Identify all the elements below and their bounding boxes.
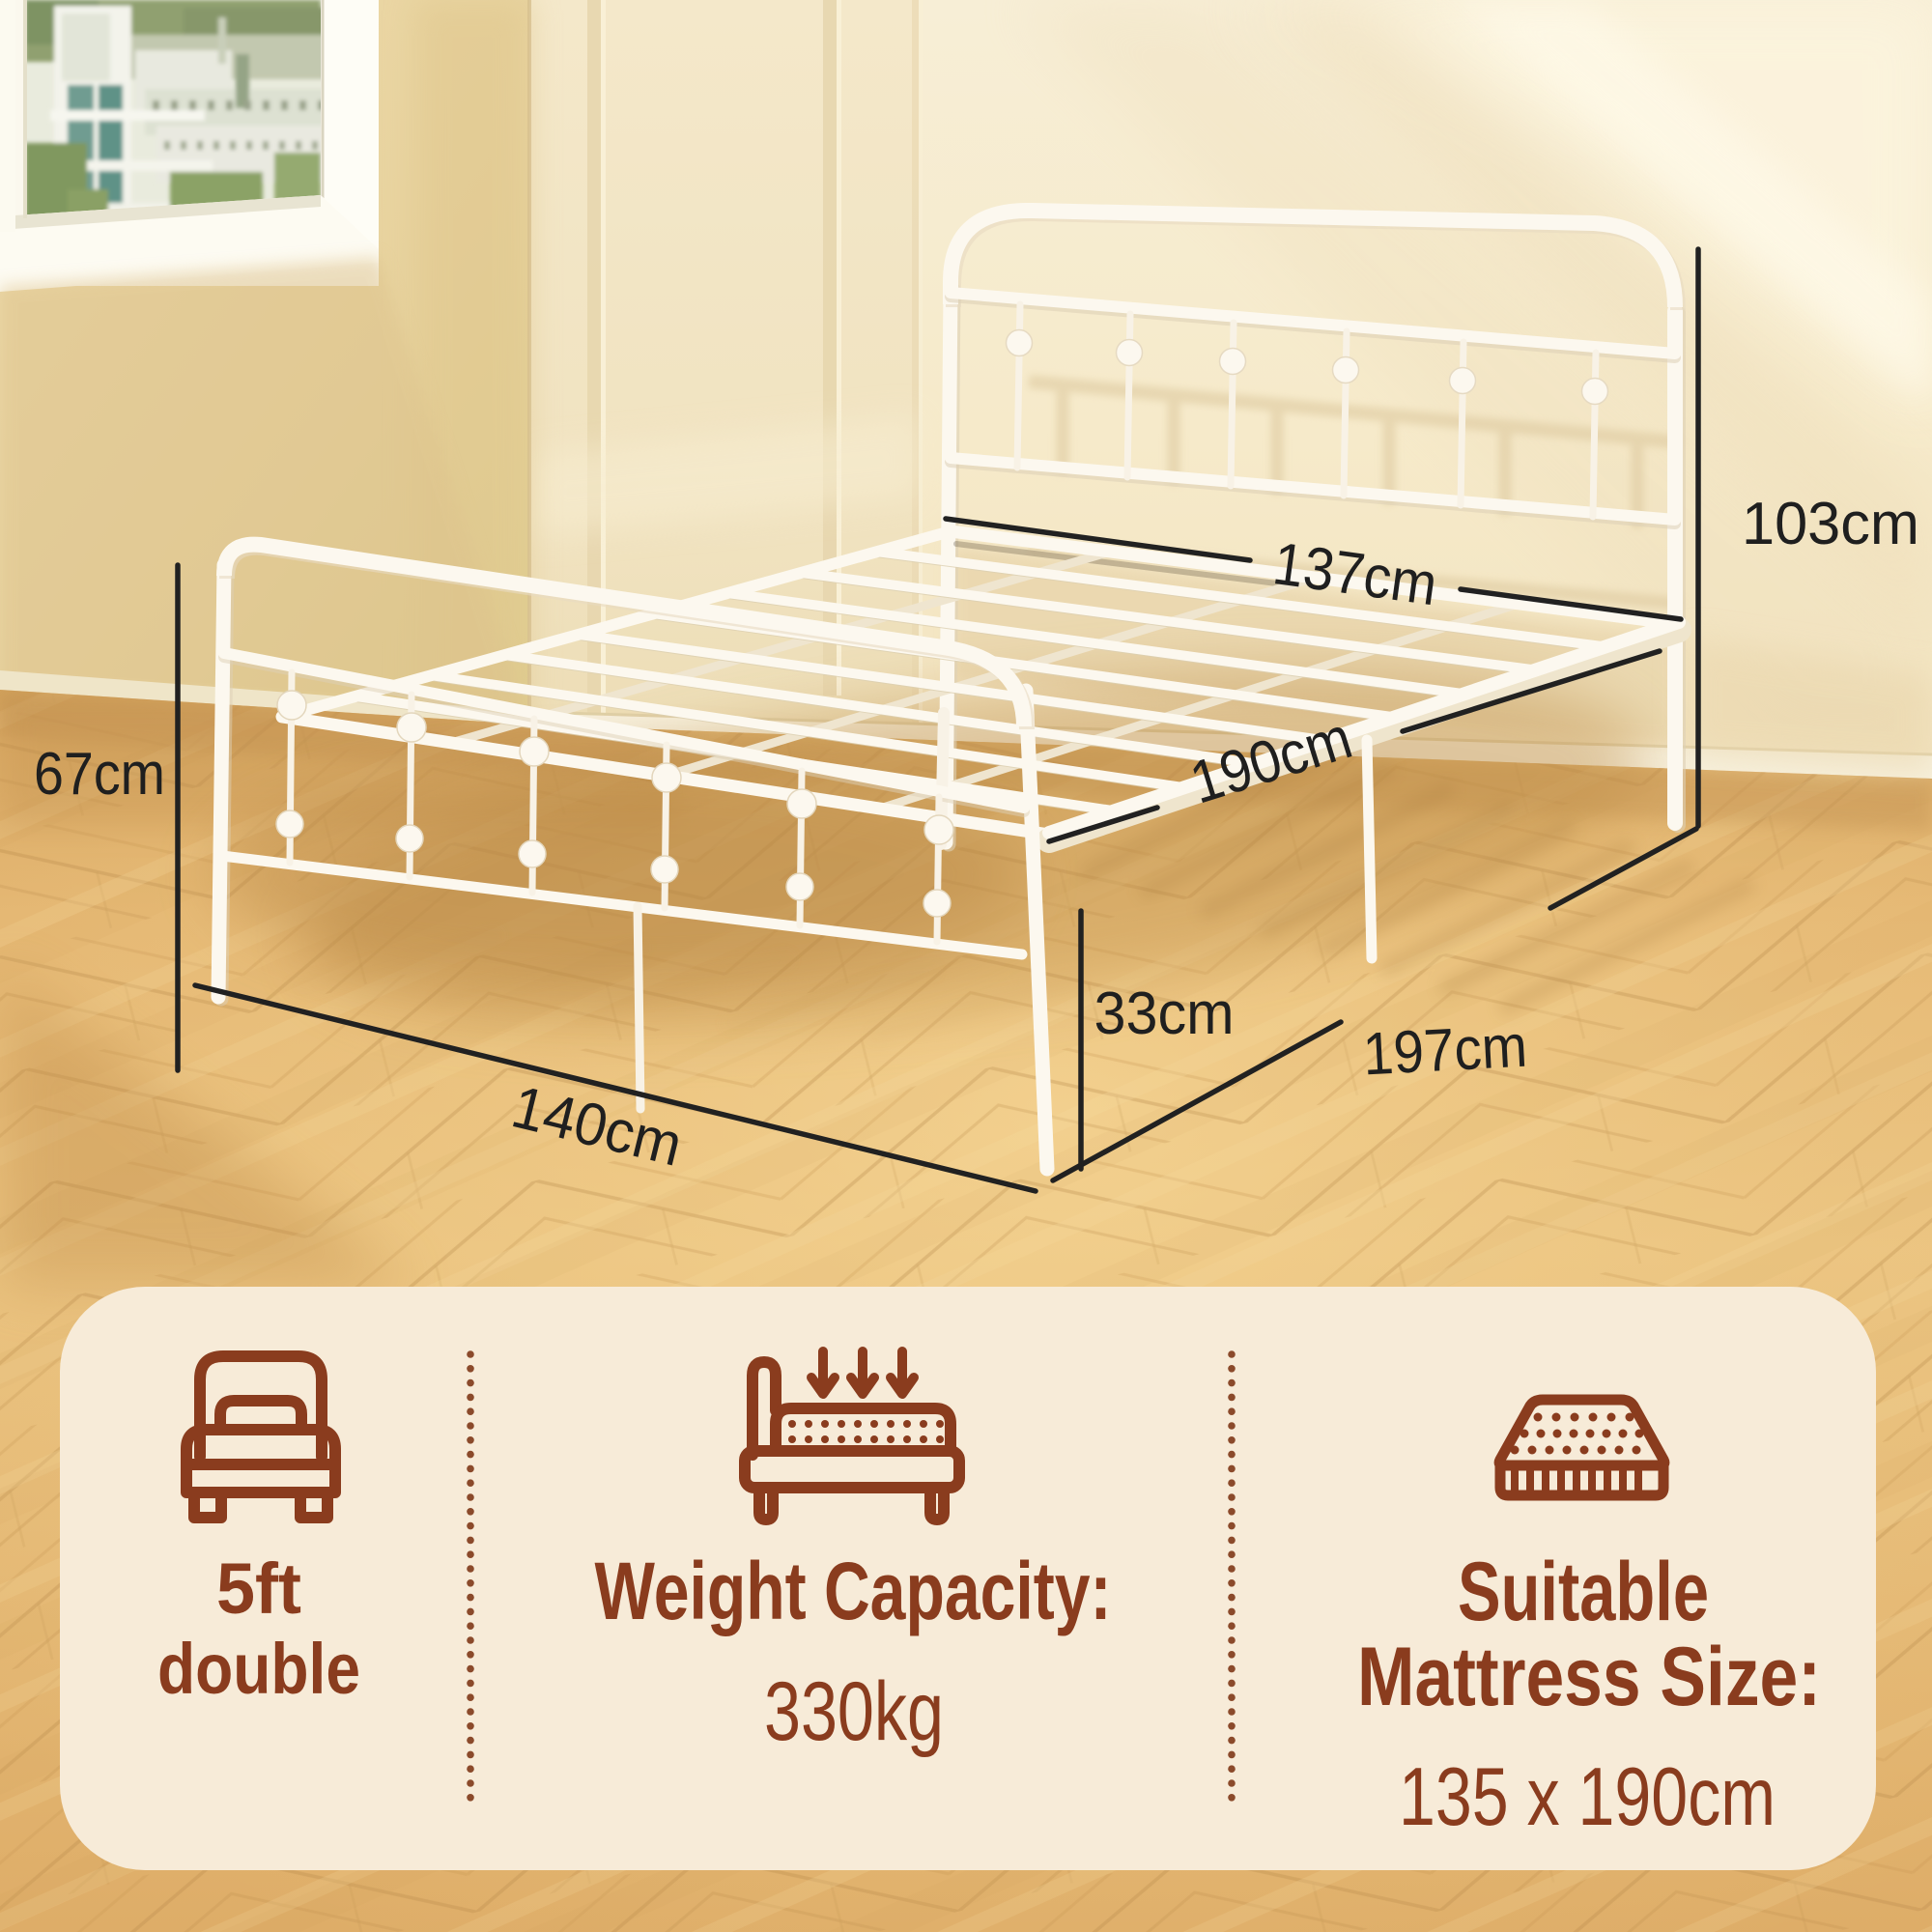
svg-text:Mattress Size:: Mattress Size: xyxy=(1357,1631,1821,1723)
svg-text:33cm: 33cm xyxy=(1094,980,1235,1047)
svg-text:67cm: 67cm xyxy=(34,741,165,808)
svg-text:Suitable: Suitable xyxy=(1458,1546,1709,1638)
svg-text:197cm: 197cm xyxy=(1361,1013,1528,1089)
svg-text:103cm: 103cm xyxy=(1742,491,1919,557)
svg-text:double: double xyxy=(157,1629,360,1709)
svg-text:5ft: 5ft xyxy=(216,1548,301,1629)
svg-text:135 x 190cm: 135 x 190cm xyxy=(1399,1751,1776,1843)
svg-text:Weight Capacity:: Weight Capacity: xyxy=(595,1546,1112,1636)
svg-text:330kg: 330kg xyxy=(764,1665,944,1758)
